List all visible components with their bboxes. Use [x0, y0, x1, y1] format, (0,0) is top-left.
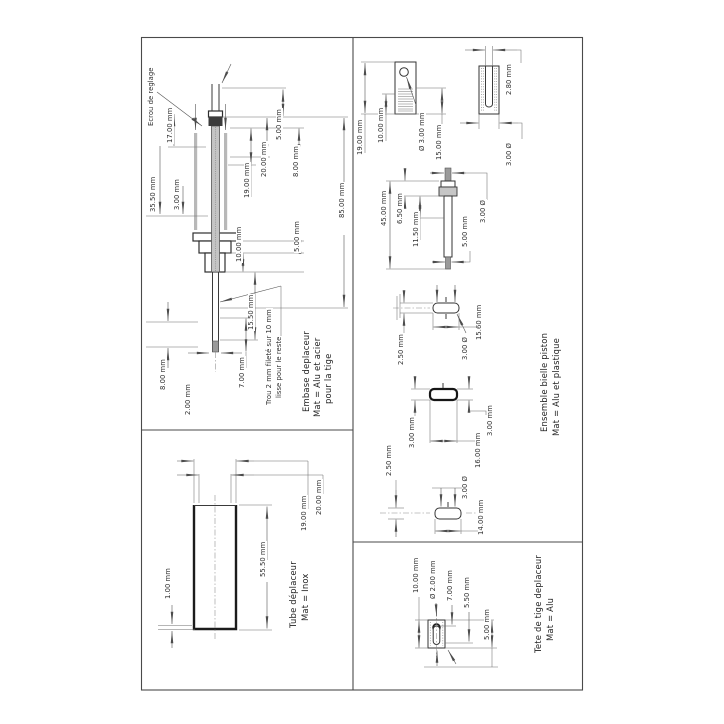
dim-label: 16.00 mm — [475, 432, 482, 469]
dim-label: 20.00 mm — [316, 479, 323, 516]
dim-label: 5.00 mm — [276, 108, 283, 141]
dim-label: 3.00 Ø — [462, 336, 469, 361]
dim-label: 3.00 Ø — [480, 199, 487, 224]
embase-part — [193, 84, 237, 372]
drawing-linework — [0, 0, 724, 724]
dim-label: 19.00 mm — [357, 119, 364, 156]
dim-label: 7.00 mm — [447, 569, 454, 602]
leader-note: Ecrou de reglage — [148, 67, 155, 127]
dim-label: 19.00 mm — [244, 162, 251, 199]
dim-label: 85.00 mm — [339, 182, 346, 219]
hole-note-line: Trou 2 mm fileté sur 10 mm — [266, 308, 273, 406]
dim-label: 2.50 mm — [398, 333, 405, 366]
dim-label: 45.00 mm — [381, 190, 388, 227]
dim-label: 3.00 Ø — [506, 142, 513, 167]
dim-label: 3.00 mm — [487, 404, 494, 437]
panel-title: Tube déplaceur — [289, 560, 298, 629]
dim-label: 5.00 mm — [462, 215, 469, 248]
dim-label: 10.00 mm — [236, 226, 243, 263]
dim-label: 3.00 Ø — [462, 475, 469, 500]
tube-part — [194, 495, 236, 641]
dim-label: 11.50 mm — [413, 211, 420, 248]
dim-label: 15.50 mm — [248, 294, 255, 331]
dim-label: 1.00 mm — [165, 567, 172, 600]
dim-label: 5.50 mm — [464, 576, 471, 609]
dim-label: 19.00 mm — [301, 495, 308, 532]
dim-label: 2.80 mm — [506, 63, 513, 96]
dim-label: 10.00 mm — [378, 107, 385, 144]
dim-label: 15.00 mm — [436, 124, 443, 161]
dim-label: 2.50 mm — [386, 444, 393, 477]
dim-label: Ø 3.00 mm — [419, 112, 426, 153]
dim-label: 20.00 mm — [261, 141, 268, 178]
dim-label: 17.00 mm — [167, 107, 174, 144]
dim-label: 3.00 mm — [409, 416, 416, 449]
dim-label: 35.50 mm — [150, 176, 157, 213]
panel-title: Ensemble bielle piston — [540, 332, 549, 433]
dim-label: 7.00 mm — [239, 356, 246, 389]
dim-label: 5.00 mm — [484, 608, 491, 641]
dim-label: 15.60 mm — [476, 304, 483, 341]
dim-label: 2.00 mm — [185, 383, 192, 416]
dim-label: 55.50 mm — [260, 541, 267, 578]
panel-title: Mat = Alu et plastique — [552, 337, 561, 437]
dim-label: Ø 2.00 mm — [430, 560, 437, 601]
dim-label: 8.00 mm — [293, 145, 300, 178]
dim-label: 10.00 mm — [413, 557, 420, 594]
panel-title: pour la tige — [324, 353, 333, 405]
tube-dimensions — [158, 459, 323, 648]
dim-label: 6.50 mm — [397, 192, 404, 225]
dim-label: 8.00 mm — [160, 358, 167, 391]
panel-title: Tete de tige deplaceur — [534, 554, 543, 654]
dim-label: 14.00 mm — [478, 499, 485, 536]
hole-note-line: lisse pour le reste — [276, 336, 283, 399]
scanned-technical-drawing: Ecrou de reglage 17.00 mm 35.50 mm 3.00 … — [0, 0, 724, 724]
panel-title: Mat = Alu — [546, 597, 555, 642]
panel-title: Embase deplaceur — [302, 330, 311, 413]
tete-part — [428, 610, 445, 657]
panel-title: Mat = Inox — [301, 572, 310, 622]
panel-title: Mat = Alu et acier — [313, 337, 322, 418]
dim-label: 5.00 mm — [294, 220, 301, 253]
dim-label: 3.00 mm — [174, 178, 181, 211]
